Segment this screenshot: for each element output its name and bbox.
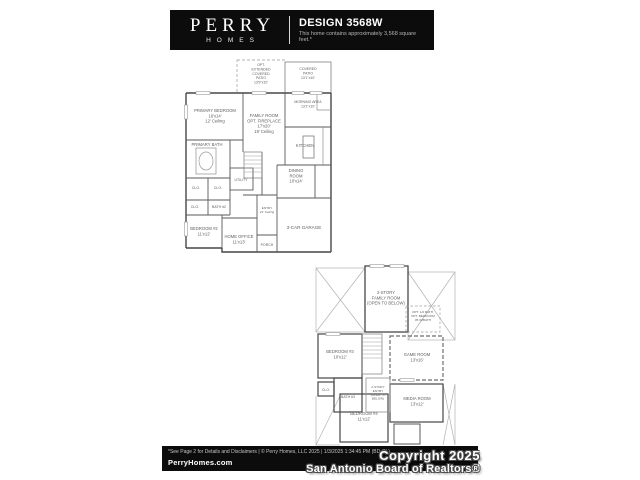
room-label-bath-2: BATH #2 [212, 205, 226, 209]
mls-watermark: Copyright 2025 San Antonio Board of Real… [306, 449, 480, 475]
first-floor-plan: OPT.EXTENDEDCOVEREDPATIO13'9"x10' COVERE… [185, 60, 332, 252]
room-label-primary-bedroom: PRIMARY BEDROOM16'x14'12' Ceiling [194, 108, 236, 124]
room-label-entry: ENTRY21' Ceiling [260, 206, 275, 214]
room-label-dining-room: DININGROOM10'x14' [289, 168, 304, 184]
room-label-opt-extended-patio: OPT.EXTENDEDCOVEREDPATIO13'9"x10' [251, 63, 271, 85]
room-label-morning-area: MORNING AREA13'1"x10' [294, 100, 322, 108]
room-label-closet-1: CLO. [192, 186, 200, 190]
room-label-closet-3: CLO. [191, 205, 199, 209]
room-label-bath-3: BATH #3 [341, 395, 355, 399]
room-label-bedroom-4: BEDROOM #411'x12' [350, 411, 378, 421]
room-label-garage: 3-CAR GARAGE [287, 225, 322, 230]
stairs-second-floor [362, 334, 382, 374]
bathtub-icon [196, 148, 216, 174]
room-label-opt-bedroom5: OPT. 1/2 BATH,OPT. BEDROOM#5 W/BATH [411, 310, 435, 322]
room-label-family-room-open: 2-STORYFAMILY ROOM(OPEN TO BELOW) [367, 290, 405, 306]
room-label-primary-bath: PRIMARY BATH [192, 142, 223, 147]
room-label-covered-patio: COVEREDPATIO13'1"x10' [299, 67, 317, 80]
watermark-board: San Antonio Board of Realtors® [306, 463, 480, 475]
room-label-media-room: MEDIA ROOM13'x12' [403, 396, 431, 406]
floor-plan-page: PERRY HOMES DESIGN 3568W This home conta… [0, 0, 640, 480]
second-floor-plan: 2-STORYFAMILY ROOM(OPEN TO BELOW) OPT. 1… [316, 265, 455, 446]
floor-plan-drawing: OPT.EXTENDEDCOVEREDPATIO13'9"x10' COVERE… [0, 0, 640, 480]
room-label-closet-2: CLO. [214, 186, 222, 190]
room-label-kitchen: KITCHEN [296, 143, 314, 148]
room-label-closet-second: CLO. [322, 388, 330, 392]
window-markers-second-floor [326, 265, 414, 382]
room-label-utility: UTILITY [234, 178, 248, 182]
room-label-bedroom-2: BEDROOM #211'x12' [190, 226, 218, 236]
room-label-entry-open: 2-STORYENTRY(OPEN TOBELOW) [371, 385, 386, 401]
room-label-home-office: HOME OFFICE11'x13' [224, 234, 253, 244]
room-label-game-room: GAME ROOM13'x16' [404, 352, 431, 362]
room-label-family-room: FAMILY ROOMOPT. FIREPLACE17'x20'19' Ceil… [247, 113, 281, 134]
room-label-bedroom-3: BEDROOM #310'x12' [326, 349, 354, 359]
watermark-copyright: Copyright 2025 [306, 449, 480, 463]
room-label-porch: PORCH [261, 243, 274, 247]
